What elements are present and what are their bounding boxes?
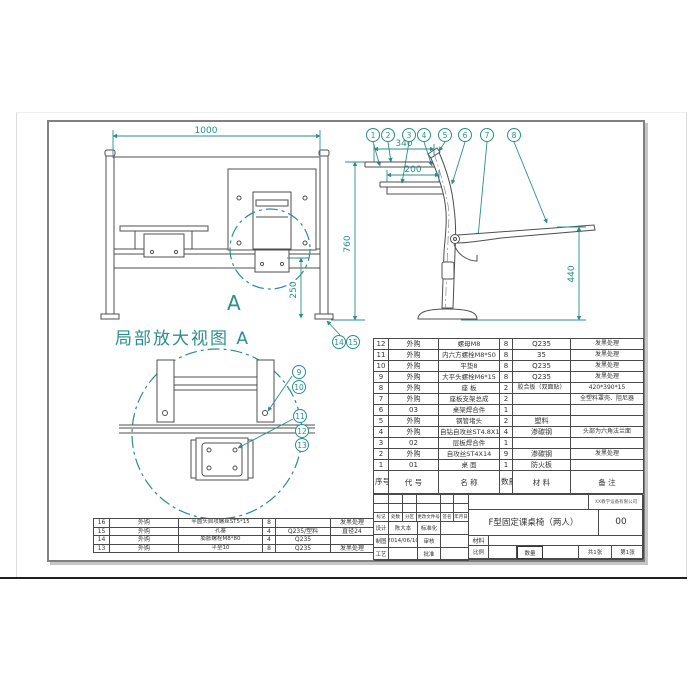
bom-table-continuation: 16外购半圆头自攻螺丝ST5*158发黑处理 15外购孔塞4Q235/塑料直径2… (93, 518, 374, 553)
hdr-docno: 更改文件号 (417, 513, 441, 522)
dim-seat-height: 440 (567, 265, 577, 282)
right-foot (315, 314, 333, 319)
side-view: 340 200 440 1 2 3 4 5 6 7 8 (365, 129, 595, 321)
sheet-total: 共1张 (579, 546, 612, 559)
craft-label: 工艺 (374, 548, 389, 561)
draft-label: 制图 (374, 535, 389, 548)
balloon-4: 4 (418, 129, 431, 142)
balloon-5: 5 (439, 129, 452, 142)
svg-text:12: 12 (297, 427, 307, 436)
detail-view-A: 局部放大视图 A 9 (115, 329, 315, 519)
balloon-11: 11 (294, 410, 307, 423)
design-label: 设计 (374, 522, 389, 535)
hdr-zone: 分区 (403, 513, 417, 522)
svg-text:14: 14 (334, 338, 344, 347)
svg-text:5: 5 (443, 131, 448, 140)
balloon-10: 10 (293, 381, 306, 394)
quantity-label: 数量 (517, 546, 543, 559)
svg-text:4: 4 (422, 131, 427, 140)
svg-text:1: 1 (371, 131, 376, 140)
bom-row: 10外购平垫88Q235发黑处理 (374, 361, 644, 372)
dim-foot: 250 (289, 281, 299, 298)
right-post (320, 154, 328, 314)
title-block-main-area: XX教学设备有限公司 F型固定课桌椅（两人） 00 材料 比例 数量 共1张 第… (469, 495, 644, 559)
svg-text:9: 9 (297, 368, 302, 377)
balloon-7: 7 (481, 129, 494, 142)
desk-top-front (120, 226, 208, 231)
sheet-number: 第1张 (612, 546, 644, 559)
company-stamp: XX教学设备有限公司 (589, 495, 644, 510)
balloon-14: 14 (333, 336, 346, 349)
front-view: A 1000 760 250 14 (101, 126, 365, 349)
drawing-sheet-frame: A 1000 760 250 14 (47, 120, 645, 562)
drawing-title: F型固定课桌椅（两人） (469, 510, 599, 536)
bom-row: 15外购孔塞4Q235/塑料直径24 (94, 527, 374, 536)
svg-text:2: 2 (386, 131, 391, 140)
svg-text:10: 10 (294, 383, 304, 392)
title-block: 标记 处数 分区 更改文件号 签名 年月日 设计 陈大本 标准化 制图 2014… (373, 494, 643, 560)
balloon-9: 9 (293, 366, 306, 379)
bom-row: 8外购座 板2胶合板（双面贴）420*390*15 (374, 383, 644, 394)
scale-label: 比例 (469, 546, 489, 559)
bom-row: 2外购自攻丝ST4X149渗碳钢发黑处理 (374, 449, 644, 460)
balloon-8: 8 (508, 129, 521, 142)
left-foot (101, 314, 119, 319)
svg-text:7: 7 (485, 131, 490, 140)
hdr-count: 处数 (389, 513, 403, 522)
hdr-date: 年月日 (454, 513, 469, 522)
title-block-revision-area: 标记 处数 分区 更改文件号 签名 年月日 设计 陈大本 标准化 制图 2014… (374, 495, 469, 559)
page-separator-line (0, 577, 687, 579)
bom-row: 603桌架焊合件1 (374, 405, 644, 416)
support-tube (430, 150, 456, 308)
left-post (106, 154, 114, 314)
designer-name: 陈大本 (389, 522, 418, 535)
dim-height: 760 (343, 235, 353, 252)
bom-row: 13外购平垫108Q235发黑处理 (94, 544, 374, 553)
svg-text:15: 15 (348, 338, 358, 347)
hdr-mark: 标记 (374, 513, 389, 522)
base-foot (418, 309, 477, 319)
bom-header-row: 序号 代 号 名 称 数量 材 料 备 注 (374, 471, 644, 494)
dim-shelf-depth: 200 (404, 165, 421, 175)
svg-text:11: 11 (295, 412, 305, 421)
balloon-12: 12 (296, 425, 309, 438)
bom-row: 16外购半圆头自攻螺丝ST5*158发黑处理 (94, 519, 374, 528)
dim-width: 1000 (195, 126, 218, 136)
svg-text:3: 3 (407, 131, 412, 140)
bom-row: 9外购大平头螺栓M6*158Q235发黑处理 (374, 372, 644, 383)
draft-date: 2014/06/10 (389, 535, 418, 548)
screenshot-canvas: A 1000 760 250 14 (0, 0, 700, 700)
bom-row: 4外购自钻自攻丝ST4.8X144渗碳钢头部为六角法兰面 (374, 427, 644, 438)
standard-label: 标准化 (418, 522, 441, 535)
bom-row: 12外购螺母M88Q235发黑处理 (374, 339, 644, 350)
balloon-2: 2 (382, 129, 395, 142)
svg-text:8: 8 (512, 131, 517, 140)
detail-view-title: 局部放大视图 A (115, 329, 250, 349)
bom-row: 101桌 面1防火板 (374, 460, 644, 471)
bom-row: 5外购钢管堵头2塑料 (374, 416, 644, 427)
svg-text:13: 13 (297, 441, 307, 450)
balloon-3: 3 (403, 129, 416, 142)
bom-table-main: 12外购螺母M88Q235发黑处理 11外购内六方螺栓M8*50835发黑处理 … (373, 338, 644, 494)
drawing-version: 00 (599, 510, 644, 536)
balloon-15: 15 (347, 336, 360, 349)
balloon-13: 13 (296, 439, 309, 452)
hdr-sign: 签名 (441, 513, 454, 522)
bom-row: 7外购座板支架总成2全塑料罩壳、阻尼器 (374, 394, 644, 405)
detail-mark-label: A (227, 291, 241, 315)
bom-row: 11外购内六方螺栓M8*50835发黑处理 (374, 350, 644, 361)
material-label: 材料 (469, 536, 489, 547)
svg-text:6: 6 (463, 131, 468, 140)
balloon-6: 6 (459, 129, 472, 142)
bom-row: 302层板焊合件1 (374, 438, 644, 449)
bom-row: 14外购膨胀螺栓M8*804Q235 (94, 536, 374, 545)
balloon-1: 1 (367, 129, 380, 142)
approve-label: 批准 (418, 548, 441, 561)
audit-label: 审核 (418, 535, 441, 548)
